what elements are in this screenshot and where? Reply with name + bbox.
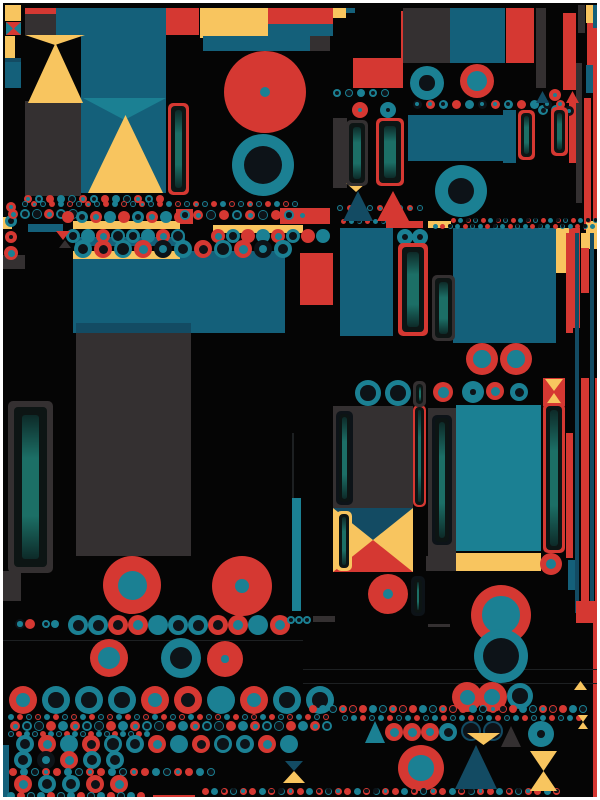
circle-inner [199,245,208,254]
circle-inner [297,618,301,622]
circle-inner [438,387,449,398]
circle-inner [32,769,38,775]
circle-shape [298,721,308,731]
circle-inner [451,716,455,720]
circle-inner [408,755,433,780]
circle-inner [249,203,252,206]
circle-shape [435,165,487,217]
circle-shape [430,788,437,795]
circle-shape [509,705,517,713]
circle-shape [500,343,532,375]
circle-shape [363,788,370,795]
circle-shape [224,51,306,133]
circle-shape [166,201,172,207]
circle-shape [493,224,498,229]
circle-shape [214,721,224,731]
circle-shape [351,715,357,721]
circle-inner [18,755,28,765]
circle-inner [397,716,401,720]
circle-inner [526,218,530,222]
circle-inner [496,218,500,222]
circle-inner [11,212,16,217]
circle-shape [76,201,82,207]
circle-shape [439,788,446,795]
circle-shape [219,210,229,220]
circle-inner [76,769,82,775]
circle-shape [519,705,527,713]
circle-shape [70,721,80,731]
circle-inner [135,715,139,719]
circle-shape [575,224,580,229]
circle-shape [130,721,140,731]
circle-shape [379,705,387,713]
circle-shape [238,721,248,731]
circle-inner [26,197,30,201]
circle-inner [343,716,347,720]
circle-shape [118,721,128,731]
circle-inner [532,716,536,720]
circle-shape [259,788,266,795]
circle-shape [8,714,14,720]
circle-inner [73,724,78,729]
circle-shape [455,224,460,229]
circle-shape [403,723,421,741]
capsule-shape [413,405,426,507]
circle-shape [357,89,365,97]
circle-shape [278,788,285,795]
circle-inner [279,692,294,707]
capsule-core [342,417,347,499]
circle-shape [40,201,46,207]
circle-shape [206,714,212,720]
circle-inner [81,197,85,201]
circle-shape [423,715,429,721]
circle-shape [32,731,38,737]
circle-inner [264,723,270,729]
circle-inner [221,655,228,662]
circle-shape [125,714,131,720]
circle-shape [76,211,88,223]
circle-inner [110,755,120,765]
circle-shape [5,231,17,243]
circle-shape [184,201,190,207]
circle-shape [224,714,230,720]
circle-shape [478,100,487,109]
circle-shape [38,775,56,793]
circle-shape [62,211,74,223]
capsule-shape [346,120,368,186]
circle-shape [34,721,44,731]
circle-inner [118,571,147,600]
circle-shape [489,705,497,713]
circle-shape [118,211,130,223]
circle-shape [143,714,149,720]
circle-inner [507,350,525,368]
rect-shape [575,233,579,613]
capsule-core [419,387,421,401]
circle-shape [531,715,537,721]
circle-inner [22,211,28,217]
triangle-shape [25,35,85,45]
circle-shape [75,768,83,776]
circle-shape [478,224,483,229]
circle-shape [360,715,366,721]
circle-inner [230,202,234,206]
circle-shape [342,715,348,721]
circle-inner [390,728,399,737]
circle-inner [65,756,74,765]
circle-shape [168,615,188,635]
circle-shape [405,715,411,721]
circle-shape [238,201,244,207]
circle-shape [344,788,351,795]
circle-inner [87,740,96,749]
circle-inner [259,245,267,253]
circle-inner [63,715,67,719]
circle-inner [88,770,92,774]
circle-inner [279,715,283,719]
circle-inner [35,722,42,729]
circle-shape [559,705,567,713]
circle-inner [493,224,497,228]
circle-inner [139,245,148,254]
circle-shape [448,224,453,229]
circle-shape [319,705,327,713]
rect-shape [303,683,600,684]
circle-shape [31,201,37,207]
circle-inner [478,716,482,720]
circle-shape [103,556,161,614]
circle-inner [512,688,528,704]
circle-inner [16,693,30,707]
rect-shape [581,248,589,293]
circle-inner [474,218,478,222]
rect-shape [503,110,516,163]
circle-inner [480,706,486,712]
circle-inner [493,102,498,107]
circle-inner [561,224,565,228]
capsule-core [175,110,182,188]
circle-shape [134,240,152,258]
circle-shape [179,714,185,720]
circle-shape [586,218,591,223]
rect-shape [586,65,593,93]
circle-inner [507,789,512,794]
rect-shape [590,233,594,613]
circle-inner [260,87,271,98]
circle-inner [409,207,412,210]
circle-inner [176,202,180,206]
circle-shape [452,100,461,109]
circle-shape [583,224,588,229]
circle-inner [87,203,90,206]
circle-shape [297,210,307,220]
circle-shape [170,735,188,753]
rect-shape [408,115,503,161]
circle-inner [33,732,37,736]
circle-inner [257,202,261,206]
rect-shape [346,8,355,13]
circle-inner [468,788,473,793]
circle-shape [175,201,181,207]
circle-inner [43,740,52,749]
circle-inner [136,197,140,201]
rect-shape [313,616,335,622]
circle-inner [338,206,342,210]
capsule-shape [8,401,53,573]
circle-inner [235,579,249,593]
circle-shape [8,209,18,219]
circle-shape [450,715,456,721]
circle-shape [68,615,88,635]
circle-inner [335,91,339,95]
circle-inner [324,715,328,719]
circle-inner [9,235,14,240]
circle-inner [370,716,374,720]
circle-shape [128,615,148,635]
circle-shape [126,735,144,753]
circle-inner [400,706,406,712]
circle-shape [530,100,539,109]
circle-inner [159,245,167,253]
circle-shape [265,201,271,207]
circle-inner [515,388,524,397]
circle-shape [369,89,377,97]
circle-shape [60,751,78,769]
circle-inner [244,146,282,184]
circle-inner [131,202,134,205]
circle-shape [517,100,526,109]
circle-inner [558,102,563,107]
circle-shape [539,705,547,713]
rect-shape [581,233,589,248]
circle-inner [289,232,297,240]
circle-shape [17,792,25,800]
circle-shape [245,210,255,220]
circle-inner [480,102,484,106]
circle-shape [571,218,576,223]
rect-shape [5,5,21,21]
triangle-shape [365,721,385,743]
circle-inner [247,693,261,707]
capsule-shape [432,415,452,545]
circle-shape [14,775,32,793]
circle-inner [373,788,378,793]
circle-shape [368,574,408,614]
circle-inner [450,706,456,712]
capsule-core [22,415,39,559]
circle-inner [441,102,446,107]
circle-shape [541,218,546,223]
rect-shape [506,8,534,63]
circle-inner [193,724,198,729]
circle-shape [486,382,504,400]
circle-inner [430,706,436,712]
circle-inner [195,203,198,206]
circle-shape [108,686,136,714]
circle-shape [10,721,20,731]
rect-shape [268,24,333,36]
rect-shape [200,8,268,38]
circle-shape [90,639,128,677]
circle-shape [90,211,102,223]
circle-inner [234,212,240,218]
rect-shape [586,5,593,23]
circle-shape [355,380,381,406]
circle-shape [468,715,474,721]
circle-inner [98,647,121,670]
circle-shape [287,714,293,720]
circle-shape [310,721,320,731]
circle-shape [563,218,568,223]
circle-shape [538,224,543,229]
circle-inner [204,723,210,729]
circle-inner [546,559,556,569]
circle-inner [84,723,90,729]
circle-inner [534,218,538,222]
capsule-core [557,113,562,150]
circle-shape [486,715,492,721]
circle-shape [496,218,501,223]
circle-shape [26,714,32,720]
circle-shape [309,705,317,713]
circle-inner [178,244,188,254]
circle-shape [234,240,252,258]
circle-inner [383,589,393,599]
circle-inner [284,202,288,206]
capsule-core [439,422,445,538]
circle-inner [248,213,253,218]
circle-inner [386,108,391,113]
circle-inner [108,715,112,719]
circle-inner [402,234,408,240]
circle-shape [463,224,468,229]
circle-inner [171,715,175,719]
circle-shape [236,735,254,753]
circle-inner [215,233,222,240]
circle-inner [33,210,40,217]
rect-shape [353,58,403,88]
circle-shape [44,209,54,219]
circle-shape [274,240,292,258]
circle-shape [148,615,168,635]
circle-shape [506,788,513,795]
circle-shape [518,218,523,223]
circle-shape [420,788,427,795]
circle-inner [100,233,107,240]
circle-inner [594,218,598,222]
circle-shape [504,100,513,109]
circle-shape [389,705,397,713]
circle-shape [322,721,332,731]
circle-shape [110,775,128,793]
circle-inner [391,707,395,711]
circle-inner [115,780,124,789]
circle-inner [300,213,305,218]
circle-inner [371,91,375,95]
circle-inner [240,739,250,749]
circle-shape [295,616,303,624]
circle-shape [242,714,248,720]
circle-inner [479,789,483,793]
capsule-core [524,116,529,154]
circle-inner [27,715,31,719]
circle-shape [488,218,493,223]
circle-shape [174,686,202,714]
circle-shape [504,715,510,721]
circle-shape [148,201,154,207]
circle-shape [67,792,75,800]
circle-inner [470,389,476,395]
circle-inner [324,723,330,729]
rect-shape [563,13,576,90]
circle-inner [559,716,563,720]
circle-shape [481,218,486,223]
circle-shape [421,723,439,741]
triangle-shape [530,771,557,791]
circle-shape [207,641,243,677]
circle-shape [459,705,467,713]
circle-shape [88,615,108,635]
circle-inner [278,244,288,254]
circle-inner [346,90,352,96]
circle-inner [426,728,434,736]
circle-shape [197,714,203,720]
circle-inner [73,620,84,631]
rect-shape [3,640,303,641]
circle-inner [81,732,85,736]
rect-shape [73,251,285,333]
circle-inner [275,233,282,240]
circle-inner [467,71,487,91]
circle-inner [526,789,530,793]
capsule-shape [518,110,535,160]
circle-shape [141,686,169,714]
circle-inner [408,728,417,737]
circle-shape [228,615,248,635]
circle-inner [368,206,372,210]
circle-shape [142,721,152,731]
circle-inner [95,722,102,729]
circle-shape [180,210,190,220]
circle-shape [207,768,215,776]
circle-shape [154,721,164,731]
circle-shape [42,686,70,714]
circle-shape [419,705,427,713]
circle-shape [137,792,145,800]
circle-shape [556,218,561,223]
circle-inner [431,789,435,793]
circle-shape [83,751,101,769]
circle-inner [91,780,100,789]
circle-shape [369,705,377,713]
circle-shape [335,788,342,795]
rect-shape [25,14,56,35]
circle-shape [433,224,438,229]
circle-shape [560,224,565,229]
circle-shape [439,705,447,713]
circle-shape [117,792,125,800]
circle-shape [429,705,437,713]
circle-shape [80,714,86,720]
circle-shape [211,201,217,207]
circle-shape [75,686,103,714]
circle-shape [296,714,302,720]
circle-shape [479,705,487,713]
circle-shape [323,714,329,720]
circle-shape [449,788,456,795]
circle-shape [207,686,235,714]
